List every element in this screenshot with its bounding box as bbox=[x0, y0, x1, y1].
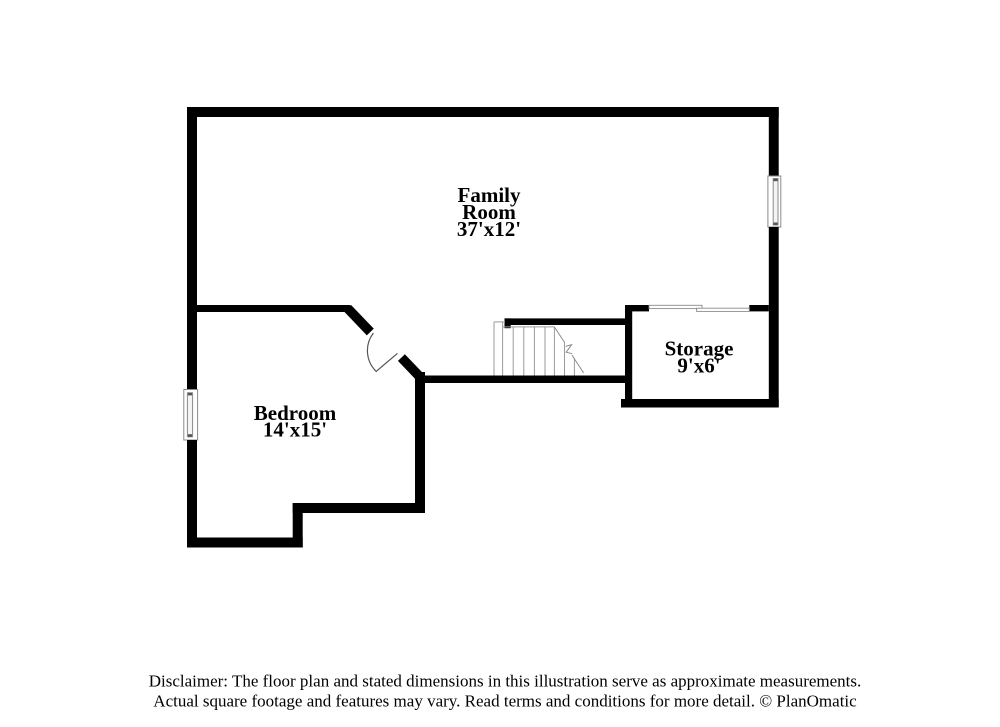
svg-text:37'x12': 37'x12' bbox=[457, 217, 521, 241]
svg-text:Disclaimer: The floor plan and: Disclaimer: The floor plan and stated di… bbox=[149, 672, 862, 691]
svg-text:14'x15': 14'x15' bbox=[263, 417, 327, 441]
svg-text:9'x6': 9'x6' bbox=[677, 354, 720, 378]
svg-text:Actual square footage and feat: Actual square footage and features may v… bbox=[153, 692, 857, 711]
